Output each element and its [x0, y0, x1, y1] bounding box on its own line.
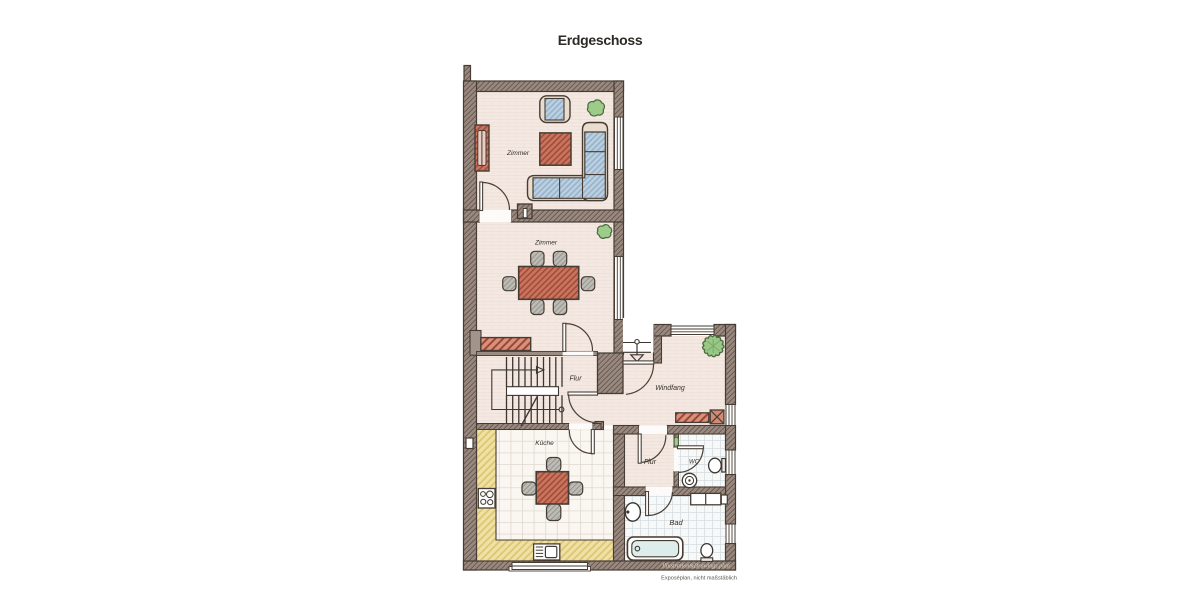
svg-text:Flur: Flur [569, 376, 582, 383]
svg-text:Küche: Küche [535, 440, 554, 447]
svg-text:Erdgeschoss: Erdgeschoss [558, 32, 643, 48]
svg-text:Zimmer: Zimmer [534, 240, 558, 247]
svg-text:Illustration&Drawings.plan: Illustration&Drawings.plan [661, 564, 730, 570]
svg-text:Zimmer: Zimmer [506, 150, 530, 157]
svg-text:Bad: Bad [669, 518, 683, 527]
svg-text:Windfang: Windfang [655, 385, 685, 392]
svg-text:Exposéplan, nicht maßstäblich: Exposéplan, nicht maßstäblich [661, 576, 737, 582]
